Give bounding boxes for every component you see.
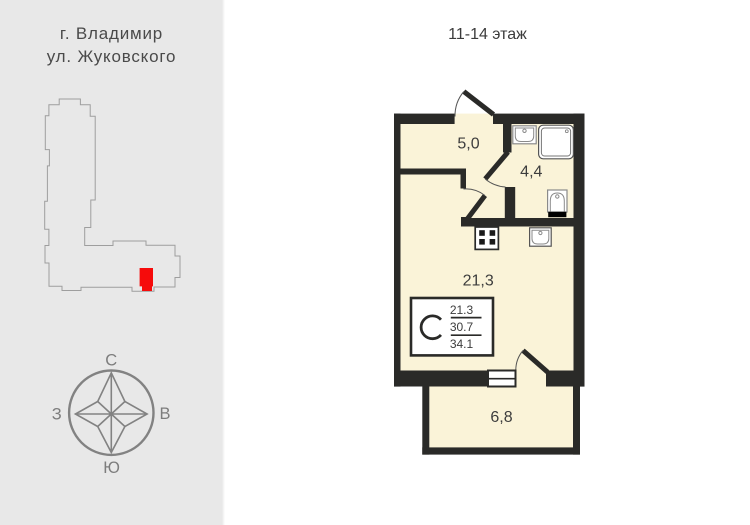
svg-text:21.3: 21.3 [450, 303, 474, 317]
svg-text:С: С [105, 352, 117, 370]
svg-text:4,4: 4,4 [520, 164, 542, 181]
svg-text:Ю: Ю [103, 459, 120, 477]
svg-text:5,0: 5,0 [457, 136, 479, 153]
svg-text:З: З [52, 405, 62, 423]
svg-text:30.7: 30.7 [450, 320, 474, 334]
svg-text:6,8: 6,8 [490, 409, 512, 426]
svg-text:21,3: 21,3 [463, 273, 494, 290]
svg-text:В: В [159, 405, 170, 423]
svg-text:34.1: 34.1 [450, 337, 474, 351]
